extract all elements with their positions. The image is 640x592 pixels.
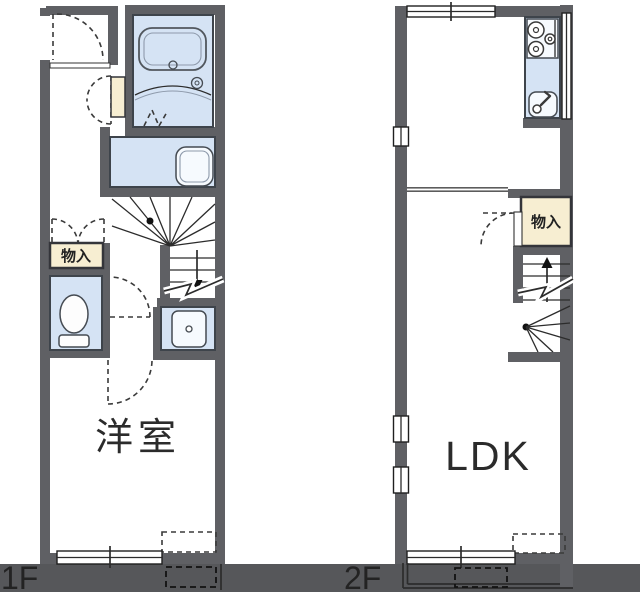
burner-icon <box>529 42 544 57</box>
dashed-outline-box <box>162 532 216 552</box>
storage-label-2f: 物入 <box>531 213 561 231</box>
wall <box>125 127 225 137</box>
toilet-door-arc <box>110 277 150 317</box>
top-window <box>407 2 495 21</box>
washroom <box>110 137 215 187</box>
vanity-counter-icon <box>111 77 125 117</box>
wall <box>508 352 573 362</box>
storage-label-1f: 物入 <box>61 247 91 265</box>
bifold-arc <box>87 76 111 100</box>
room-label-2f: LDK <box>445 433 531 479</box>
floor-label-2f: 2F <box>344 560 381 592</box>
entrance-door-icon <box>50 14 110 68</box>
wall <box>108 15 118 65</box>
wall <box>40 350 110 358</box>
wall <box>395 442 407 467</box>
washbasin-room <box>161 307 215 350</box>
room-label-1f: 洋室 <box>95 415 181 459</box>
wall <box>46 6 118 15</box>
toilet-icon <box>60 295 88 333</box>
up-arrow-icon <box>542 257 553 268</box>
floor-plan-1f: 物入 洋 <box>40 5 225 590</box>
wall <box>125 15 133 127</box>
wall <box>100 127 110 197</box>
wall <box>153 307 161 353</box>
partition-bottom <box>407 190 508 192</box>
stair-walkline-dot <box>147 218 154 225</box>
storage-door-arc <box>52 219 78 245</box>
floorplan-svg: 1F 2F <box>0 0 640 592</box>
storage-door-arc <box>481 213 514 246</box>
wall <box>153 350 225 360</box>
bifold-arc <box>87 100 111 124</box>
dashed-outline-box <box>513 534 565 553</box>
faucet-base-icon <box>533 105 541 113</box>
wall <box>395 8 407 127</box>
stair-winder-treads <box>112 197 215 246</box>
wall <box>40 60 50 564</box>
burner-icon <box>528 22 544 38</box>
kitchen <box>525 13 571 119</box>
partition-top <box>407 187 508 189</box>
storage-1f: 物入 <box>50 219 104 268</box>
partition-line <box>407 187 508 192</box>
floor-label-1f: 1F <box>1 560 38 592</box>
storage-door-leaf <box>514 212 522 246</box>
wall <box>157 298 225 307</box>
wall <box>513 246 573 255</box>
wall <box>560 564 573 588</box>
toilet-tank <box>59 335 89 347</box>
faucet-icon <box>192 78 203 89</box>
stair-treads <box>170 258 215 282</box>
wall <box>100 187 225 197</box>
entry-step-line <box>50 63 110 68</box>
floor-plan-2f: 物入 LDK <box>394 2 574 588</box>
burner-icon <box>545 34 555 44</box>
storage-door-arc <box>78 219 104 245</box>
wall <box>395 146 407 416</box>
basin-drain-icon <box>186 326 192 332</box>
ldk-room: LDK <box>407 433 565 568</box>
door-swing-arc <box>57 14 103 60</box>
toilet-room <box>50 276 150 350</box>
unit-bath <box>133 15 213 127</box>
wall <box>125 5 225 15</box>
storage-2f: 物入 <box>481 197 571 246</box>
bifold-door-icon <box>87 76 111 124</box>
room-door-arc <box>108 360 152 404</box>
floorplan-canvas: 1F 2F <box>0 0 640 592</box>
